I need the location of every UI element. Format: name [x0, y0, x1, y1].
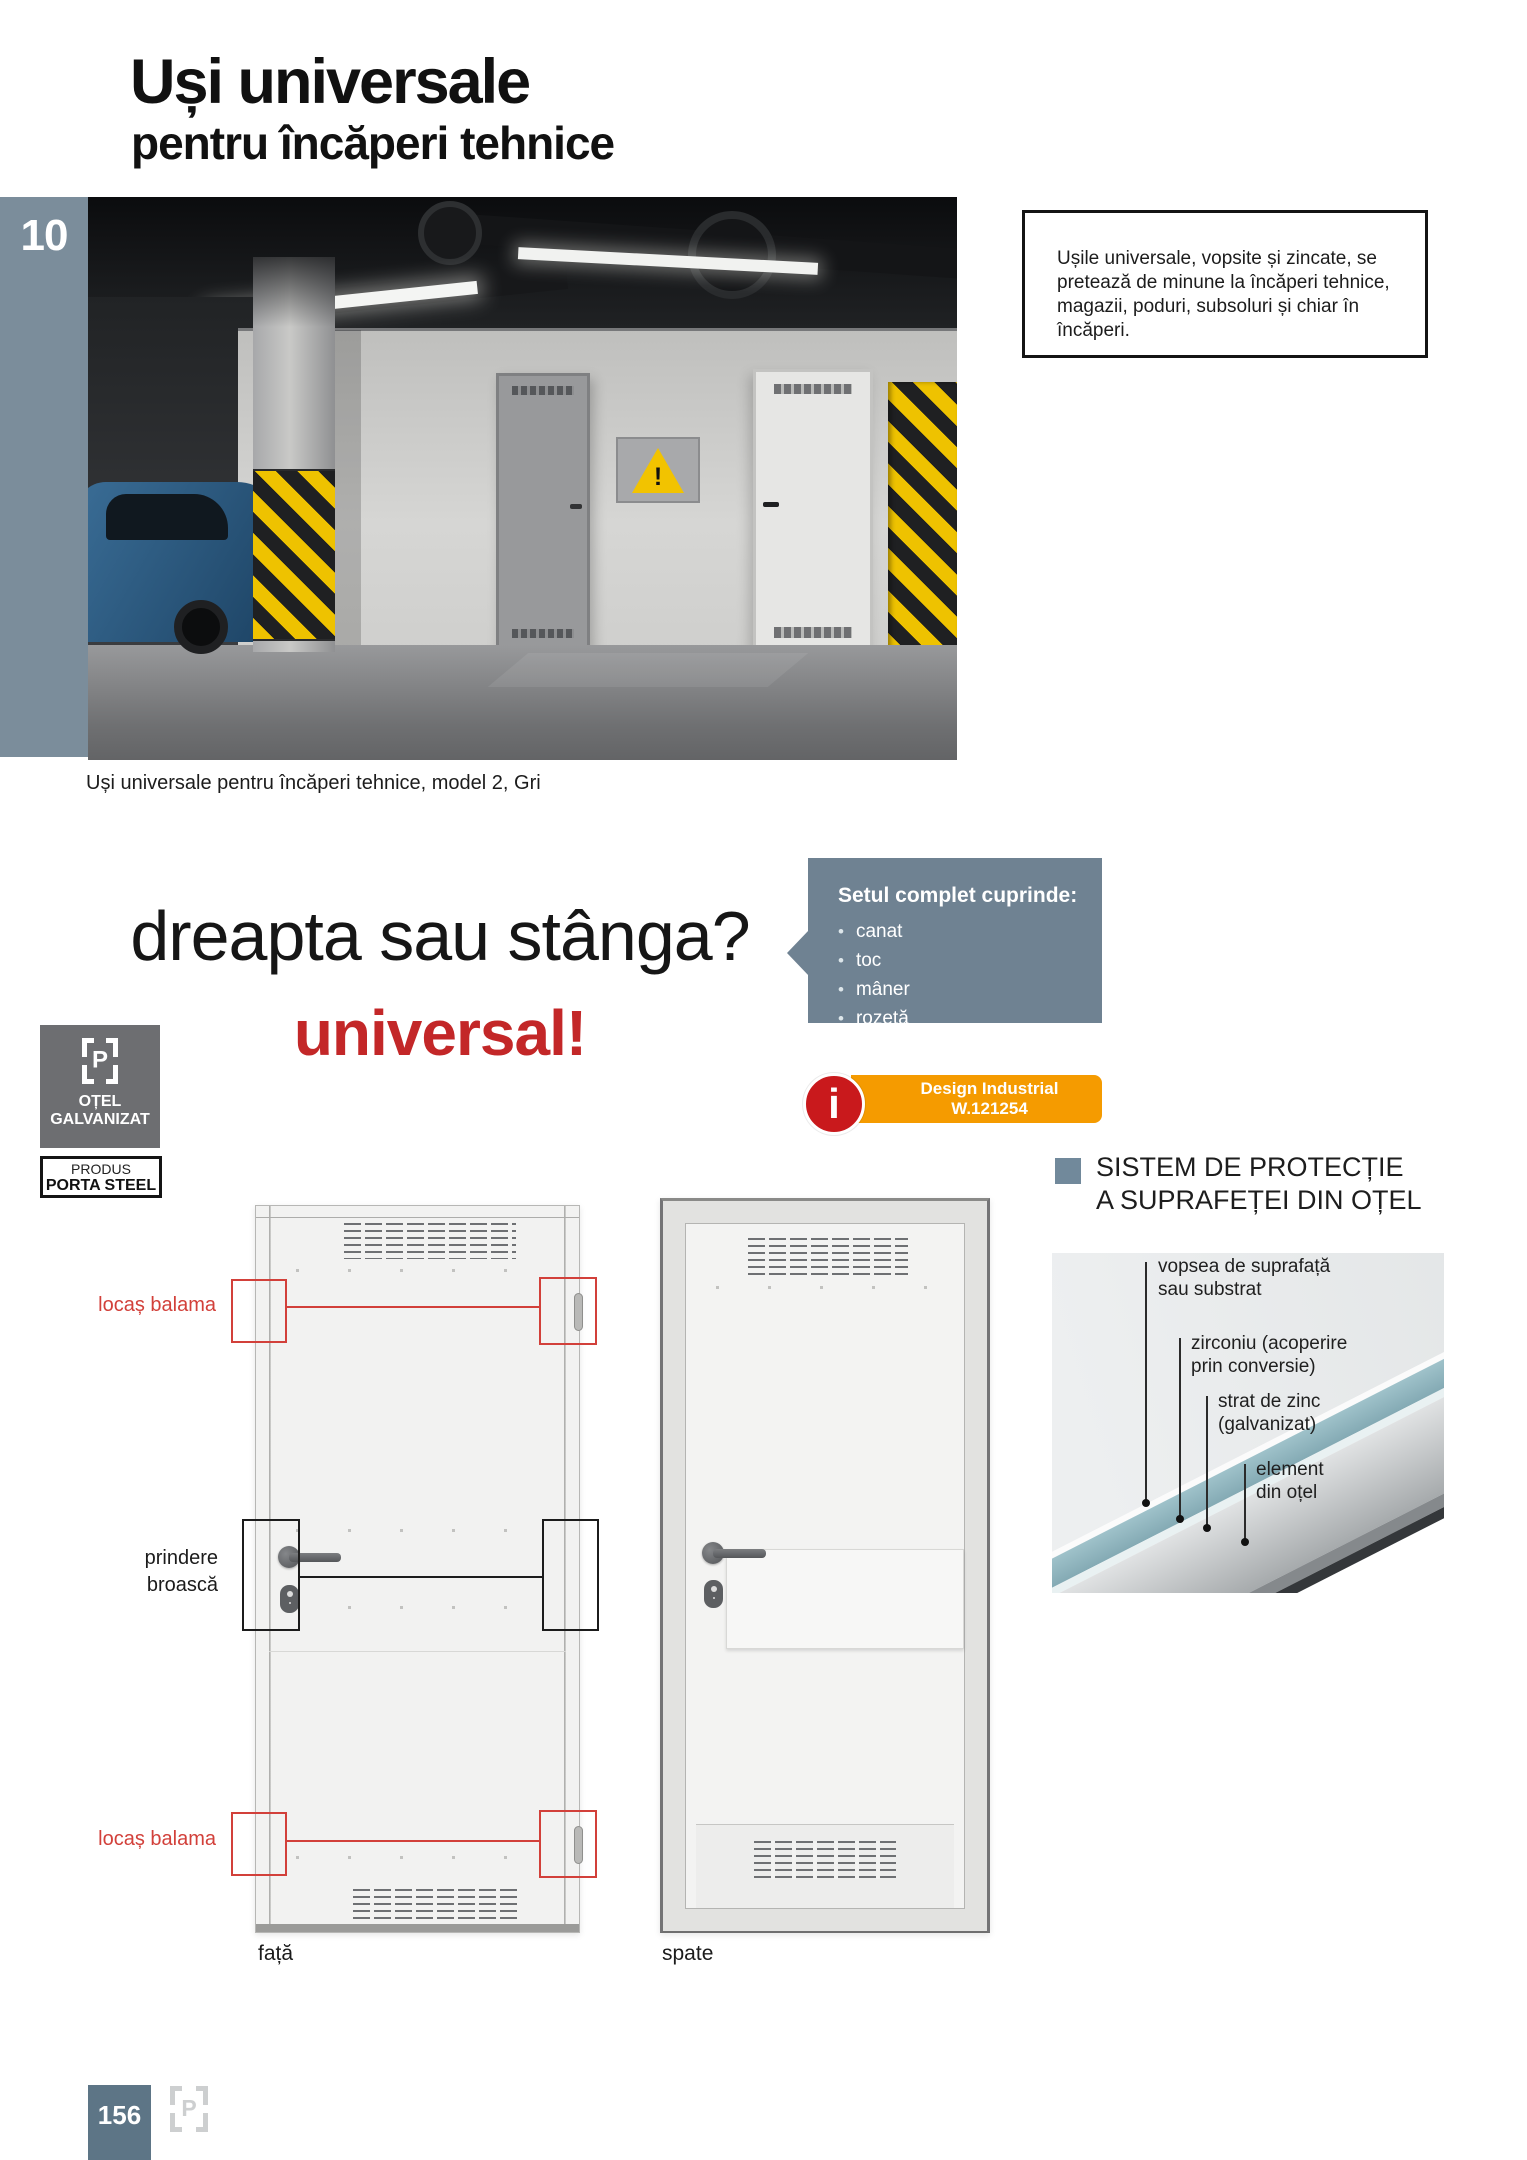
- porta-logo-icon: P: [82, 1038, 118, 1084]
- photo-door-handle: [570, 504, 582, 509]
- rivet-row: [716, 1286, 934, 1289]
- photo-door-gray: [496, 373, 590, 653]
- photo-floor-reflection: [488, 653, 809, 687]
- bullet-icon: •: [838, 1009, 844, 1028]
- pointer-dot: [1176, 1515, 1184, 1523]
- chapter-number: 10: [0, 211, 88, 261]
- photo-car-wheel: [174, 600, 228, 654]
- intro-text: Ușile universale, vopsite și zincate, se…: [1057, 248, 1390, 341]
- set-contents-list: •canat •toc •mâner •rozetă: [838, 917, 1092, 1033]
- annotation-box-lock: [242, 1519, 300, 1631]
- info-icon: i: [803, 1073, 865, 1135]
- galvanized-steel-badge: P OȚEL GALVANIZAT: [40, 1025, 160, 1148]
- annotation-line: [287, 1840, 539, 1842]
- photo-vent-fan: [418, 201, 482, 265]
- photo-door-grille: [512, 629, 574, 638]
- hinge-bottom-label: locaș balama: [90, 1828, 216, 1851]
- annotation-box-hinge: [231, 1279, 287, 1343]
- steel-badge-text: OȚEL GALVANIZAT: [40, 1093, 160, 1129]
- ventilation-grille-top: [748, 1238, 908, 1276]
- photo-door-grille: [774, 384, 852, 394]
- annotation-box-hinge: [231, 1812, 287, 1876]
- photo-pillar: [253, 257, 335, 652]
- tagline-question: dreapta sau stânga?: [120, 896, 760, 976]
- footer-porta-logo-icon: P: [170, 2086, 208, 2132]
- photo-pillar-hazard-stripes: [253, 469, 335, 641]
- pointer-dot: [1241, 1538, 1249, 1546]
- page-subtitle: pentru încăperi tehnice: [131, 116, 614, 170]
- photo-warning-sign: !: [616, 437, 700, 503]
- door-leaf: [685, 1223, 965, 1909]
- pointer-line: [1206, 1396, 1208, 1527]
- pointer-dot: [1203, 1524, 1211, 1532]
- door-bottom-bar: [256, 1924, 579, 1932]
- door-panel-seam: [269, 1651, 566, 1652]
- rivet-row: [296, 1606, 539, 1609]
- front-door-caption: față: [258, 1942, 293, 1966]
- door-front-view: [255, 1205, 580, 1933]
- list-item: •canat: [838, 917, 1092, 946]
- photo-car-window: [106, 494, 228, 540]
- bullet-icon: •: [838, 951, 844, 970]
- set-contents-title: Setul complet cuprinde:: [838, 884, 1092, 908]
- bullet-icon: •: [838, 922, 844, 941]
- protection-heading: SISTEM DE PROTECȚIE A SUPRAFEȚEI DIN OȚE…: [1096, 1151, 1422, 1217]
- list-item: •rozetă: [838, 1004, 1092, 1033]
- list-item: •toc: [838, 946, 1092, 975]
- intro-text-box: Ușile universale, vopsite și zincate, se…: [1022, 210, 1428, 358]
- pointer-line: [1145, 1262, 1147, 1502]
- rivet-row: [296, 1269, 539, 1272]
- pointer-line: [1179, 1338, 1181, 1518]
- photo-pillar-top-shade: [253, 257, 335, 327]
- photo-pillar-shadow: [335, 330, 361, 652]
- page-number-square: 156: [88, 2085, 151, 2160]
- pointer-line: [1244, 1464, 1246, 1541]
- photo-caption: Uși universale pentru încăperi tehnice, …: [86, 772, 541, 795]
- annotation-box-hinge: [539, 1810, 597, 1878]
- annotation-line: [300, 1576, 542, 1578]
- layer-label-zinc: strat de zinc (galvanizat): [1218, 1390, 1320, 1436]
- door-top-seam: [256, 1217, 579, 1218]
- bullet-icon: •: [838, 980, 844, 999]
- photo-door-grille: [774, 627, 852, 638]
- ventilation-grille-bottom: [353, 1889, 521, 1926]
- bottom-recessed-panel: [696, 1824, 954, 1908]
- pointer-dot: [1142, 1499, 1150, 1507]
- product-badge: PRODUS PORTA STEEL: [40, 1156, 162, 1198]
- photo-door-grille: [512, 386, 574, 395]
- catalog-page: Uși universale pentru încăperi tehnice 1…: [0, 0, 1527, 2160]
- rivet-row: [296, 1856, 539, 1859]
- page-title: Uși universale: [130, 46, 529, 118]
- layer-label-steel: element din oțel: [1256, 1458, 1324, 1504]
- photo-door-handle: [763, 502, 779, 507]
- door-handle-lever: [713, 1549, 766, 1558]
- callout-arrow-left: [787, 930, 809, 976]
- photo-door-white: [753, 369, 873, 655]
- door-back-view: [660, 1198, 990, 1933]
- ventilation-grille-bottom: [754, 1841, 896, 1879]
- annotation-box-lock: [542, 1519, 599, 1631]
- hinge-top-label: locaș balama: [90, 1294, 216, 1317]
- back-door-caption: spate: [662, 1942, 713, 1966]
- tagline-answer: universal!: [120, 996, 760, 1070]
- lock-reinforcement-plate: [726, 1549, 964, 1649]
- photo-vent-fan: [688, 211, 776, 299]
- lock-label: prindere broască: [92, 1545, 218, 1599]
- keyhole-escutcheon: [704, 1580, 723, 1608]
- layer-label-zirconium: zirconiu (acoperire prin conversie): [1191, 1332, 1347, 1378]
- page-number: 156: [98, 2100, 141, 2130]
- annotation-line: [287, 1306, 539, 1308]
- design-industrial-badge: Design Industrial W.121254: [851, 1075, 1102, 1123]
- chapter-strip: 10: [0, 197, 88, 757]
- ventilation-grille-top: [344, 1223, 516, 1259]
- photo-hazard-corner-right: [888, 382, 957, 654]
- annotation-box-hinge: [539, 1277, 597, 1345]
- layer-label-paint: vopsea de suprafață sau substrat: [1158, 1255, 1330, 1301]
- list-item: •mâner: [838, 975, 1092, 1004]
- warning-exclamation: !: [618, 463, 698, 492]
- rivet-row: [296, 1529, 539, 1532]
- hero-photo-garage: !: [88, 197, 957, 760]
- heading-bullet-square: [1055, 1158, 1081, 1184]
- set-contents-box: Setul complet cuprinde: •canat •toc •mân…: [808, 858, 1102, 1023]
